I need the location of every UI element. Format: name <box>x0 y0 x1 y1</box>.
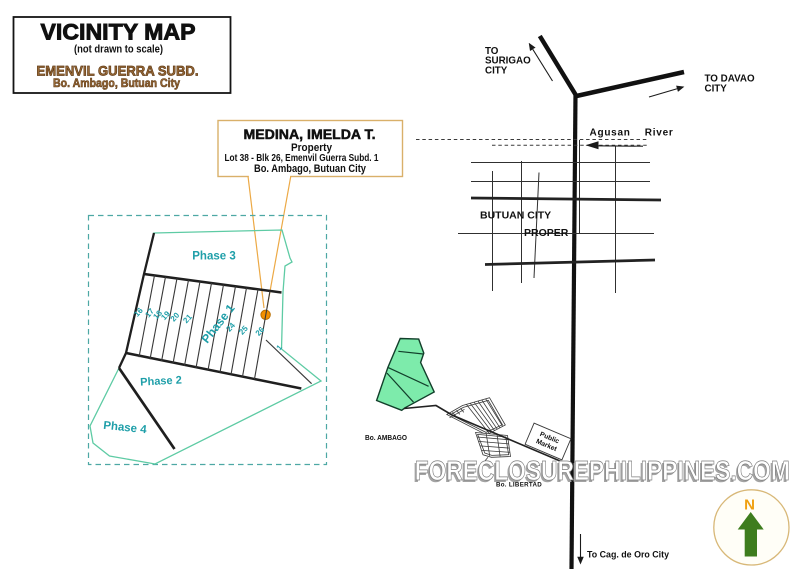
svg-text:To Cag. de Oro City: To Cag. de Oro City <box>587 550 670 561</box>
svg-text:VICINITY MAP: VICINITY MAP <box>41 20 196 45</box>
svg-text:PROPER: PROPER <box>524 227 569 239</box>
svg-text:Bo. Ambago, Butuan City: Bo. Ambago, Butuan City <box>254 163 367 175</box>
svg-text:Bo. LIBERTAD: Bo. LIBERTAD <box>496 482 542 489</box>
svg-text:N: N <box>744 497 755 514</box>
svg-text:25: 25 <box>237 324 250 337</box>
svg-text:CITY: CITY <box>705 84 728 95</box>
svg-text:(not drawn to scale): (not drawn to scale) <box>74 43 163 55</box>
svg-text:CITY: CITY <box>485 65 508 76</box>
svg-text:BUTUAN CITY: BUTUAN CITY <box>480 210 551 222</box>
svg-text:Phase 2: Phase 2 <box>140 374 182 388</box>
svg-text:Bo. AMBAGO: Bo. AMBAGO <box>365 433 407 442</box>
svg-text:Phase 4: Phase 4 <box>103 420 148 437</box>
svg-text:26: 26 <box>254 325 267 338</box>
svg-text:Bo. Ambago, Butuan City: Bo. Ambago, Butuan City <box>53 76 180 90</box>
svg-text:Agusan River: Agusan River <box>590 128 675 139</box>
svg-text:Phase 3: Phase 3 <box>192 251 235 263</box>
svg-text:MEDINA, IMELDA T.: MEDINA, IMELDA T. <box>244 127 376 142</box>
svg-text:FORECLOSUREPHILIPPINES.COM: FORECLOSUREPHILIPPINES.COM <box>415 455 790 486</box>
